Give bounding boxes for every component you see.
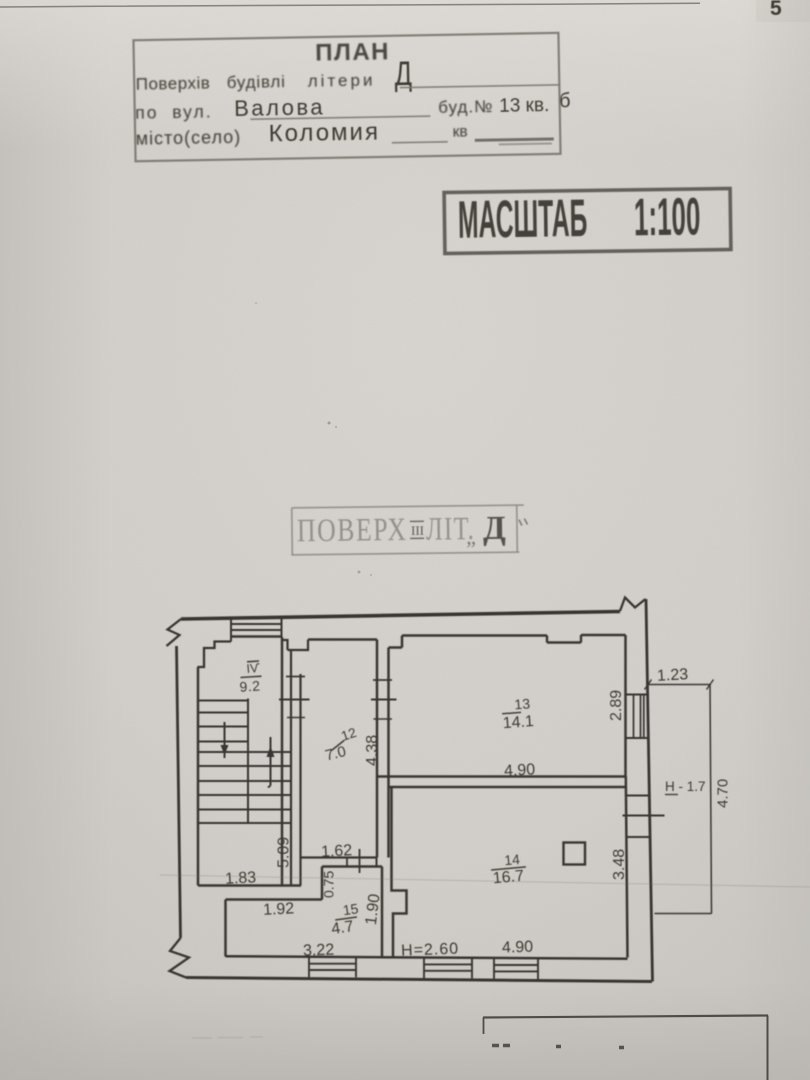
svg-text:б: б bbox=[559, 90, 571, 112]
svg-text:4.90: 4.90 bbox=[502, 939, 534, 957]
svg-text:2.89: 2.89 bbox=[608, 690, 625, 721]
svg-text:4.70: 4.70 bbox=[715, 779, 732, 808]
svg-text:5: 5 bbox=[770, 0, 782, 20]
svg-text:4.90: 4.90 bbox=[504, 761, 536, 780]
svg-text:1.83: 1.83 bbox=[225, 869, 257, 888]
svg-text:14.1: 14.1 bbox=[502, 713, 534, 732]
svg-text:Коломия: Коломия bbox=[268, 118, 380, 147]
svg-text:ПЛАН: ПЛАН bbox=[315, 38, 390, 66]
svg-text:ІІІ: ІІІ bbox=[411, 523, 424, 538]
svg-text:14: 14 bbox=[504, 851, 521, 868]
svg-text:місто(село): місто(село) bbox=[136, 127, 242, 149]
svg-text:16.7: 16.7 bbox=[492, 868, 525, 888]
svg-text:5.09: 5.09 bbox=[276, 837, 293, 868]
svg-text:ПОВЕРХ: ПОВЕРХ bbox=[297, 512, 408, 549]
svg-text:3.48: 3.48 bbox=[611, 849, 628, 880]
svg-text:4.7: 4.7 bbox=[330, 918, 354, 938]
svg-text:„: „ bbox=[466, 524, 476, 549]
svg-text:4.38: 4.38 bbox=[364, 735, 381, 766]
svg-text:кв: кв bbox=[452, 123, 467, 140]
svg-text:1.92: 1.92 bbox=[263, 900, 295, 919]
svg-text:Валова: Валова bbox=[234, 94, 325, 121]
svg-text:3.22: 3.22 bbox=[303, 942, 335, 960]
svg-text:МАСШТАБ: МАСШТАБ bbox=[458, 189, 588, 250]
svg-text:1:100: 1:100 bbox=[634, 186, 701, 247]
svg-text:Н=2.60: Н=2.60 bbox=[401, 941, 460, 960]
svg-text:ІѴ: ІѴ bbox=[246, 661, 261, 676]
svg-text:повул.: повул. bbox=[135, 101, 213, 122]
svg-text:0.75: 0.75 bbox=[321, 871, 337, 898]
svg-text:1.23: 1.23 bbox=[657, 666, 689, 685]
svg-text:15: 15 bbox=[342, 900, 360, 918]
svg-text:13 кв.: 13 кв. bbox=[499, 95, 549, 117]
svg-text:Д: Д bbox=[483, 509, 506, 547]
svg-text:буд.№: буд.№ bbox=[438, 97, 494, 117]
svg-text:1.62: 1.62 bbox=[321, 842, 353, 861]
svg-text:9.2: 9.2 bbox=[239, 677, 261, 694]
svg-text:Н - 1.7: Н - 1.7 bbox=[665, 779, 706, 794]
svg-text:13: 13 bbox=[514, 695, 531, 712]
